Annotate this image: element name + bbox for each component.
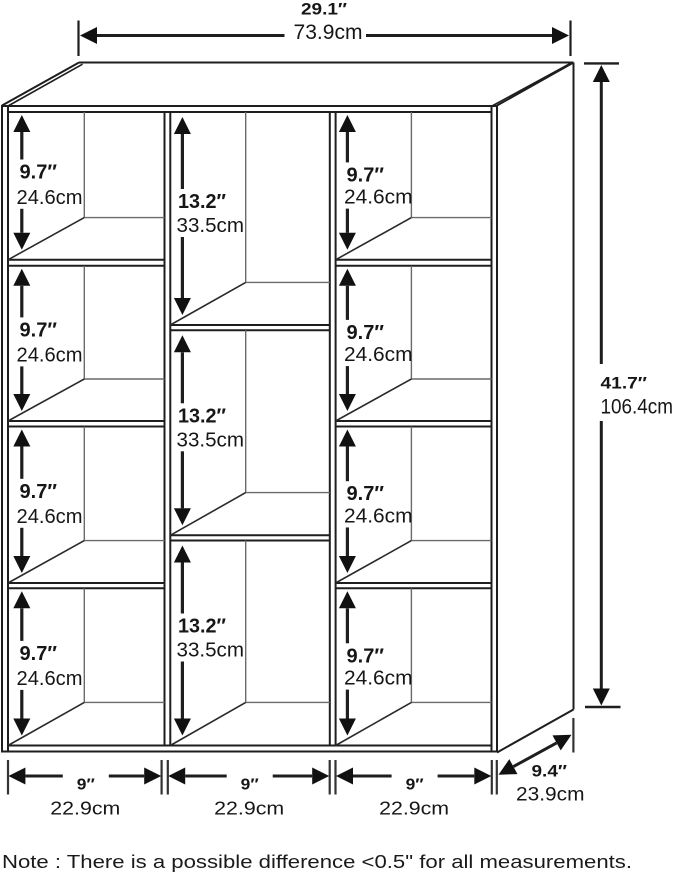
svg-text:106.4cm: 106.4cm <box>601 396 674 419</box>
svg-text:33.5cm: 33.5cm <box>177 640 245 662</box>
svg-text:24.6cm: 24.6cm <box>344 344 413 366</box>
svg-text:29.1″: 29.1″ <box>301 0 347 19</box>
svg-text:9.7″: 9.7″ <box>20 643 58 665</box>
svg-text:24.6cm: 24.6cm <box>344 505 413 527</box>
svg-text:9″: 9″ <box>406 777 424 794</box>
svg-text:9.7″: 9.7″ <box>20 319 58 341</box>
svg-text:13.2″: 13.2″ <box>178 616 226 638</box>
svg-text:9.7″: 9.7″ <box>347 483 385 505</box>
svg-text:22.9cm: 22.9cm <box>214 798 284 819</box>
svg-text:9.7″: 9.7″ <box>20 481 58 503</box>
svg-text:24.6cm: 24.6cm <box>344 187 413 209</box>
svg-text:9.7″: 9.7″ <box>347 322 385 344</box>
svg-text:33.5cm: 33.5cm <box>177 429 245 451</box>
svg-text:23.9cm: 23.9cm <box>516 785 585 806</box>
svg-text:9″: 9″ <box>77 777 95 794</box>
svg-text:24.6cm: 24.6cm <box>17 506 83 528</box>
svg-text:33.5cm: 33.5cm <box>177 215 245 237</box>
svg-text:22.9cm: 22.9cm <box>50 798 120 819</box>
svg-text:73.9cm: 73.9cm <box>294 21 363 44</box>
svg-text:9.7″: 9.7″ <box>20 162 58 184</box>
svg-text:22.9cm: 22.9cm <box>379 798 449 819</box>
svg-text:24.6cm: 24.6cm <box>344 668 413 690</box>
svg-text:24.6cm: 24.6cm <box>17 187 83 209</box>
svg-text:41.7″: 41.7″ <box>601 374 648 393</box>
svg-text:13.2″: 13.2″ <box>178 191 226 213</box>
svg-text:24.6cm: 24.6cm <box>17 668 83 690</box>
svg-text:Note : There is a possible dif: Note : There is a possible difference <0… <box>2 852 632 872</box>
svg-text:9.7″: 9.7″ <box>347 645 385 667</box>
svg-text:9.7″: 9.7″ <box>347 164 385 186</box>
svg-text:13.2″: 13.2″ <box>178 405 226 427</box>
svg-text:24.6cm: 24.6cm <box>17 344 83 366</box>
svg-text:9″: 9″ <box>241 777 259 794</box>
svg-text:9.4″: 9.4″ <box>532 762 568 781</box>
